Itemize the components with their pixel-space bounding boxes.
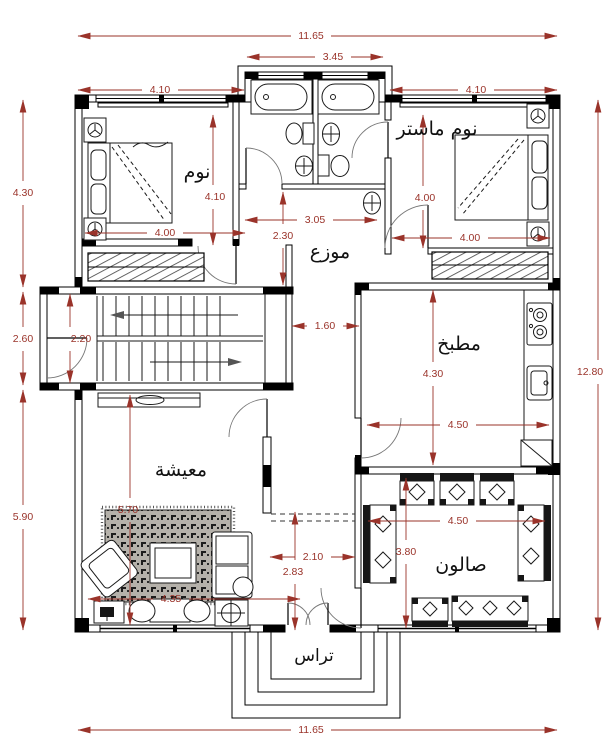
stair-direction-arrows (110, 311, 242, 366)
staircase (97, 294, 265, 383)
corner-sofa (212, 532, 253, 598)
dim-left-lower: 5.90 (13, 390, 34, 630)
dim-label: 4.30 (13, 187, 34, 199)
dim-label: 12.80 (577, 366, 603, 378)
door-bath-left (246, 148, 282, 184)
kitchen-corner-cabinet (521, 440, 552, 466)
salon-sofa-right (518, 505, 551, 581)
bathtub-left (251, 80, 312, 114)
dim-top-bath: 3.45 (247, 51, 383, 63)
nightstand-top-master (527, 104, 549, 128)
nightstand-bottom-left (84, 218, 106, 240)
window-bedroom-top (96, 95, 228, 107)
salon-sofa-bottom-wide (452, 596, 528, 627)
open-beam-dashed (271, 514, 355, 521)
dim-top-right-room: 4.10 (390, 84, 557, 96)
coffee-table (150, 543, 196, 583)
dim-label: 4.50 (448, 419, 469, 431)
dim-label: 1.60 (315, 320, 336, 332)
hall-sideboard (98, 393, 200, 407)
terrace-steps (232, 632, 400, 718)
dim-right-total: 12.80 (577, 100, 603, 630)
table-with-fan-symbol (215, 600, 248, 626)
dim-master-width: 4.00 (392, 232, 550, 244)
label-terrace: تراس (294, 646, 334, 666)
dim-entry-depth: 2.83 (283, 512, 304, 630)
dim-label: 5.70 (118, 504, 139, 516)
salon-chair-2 (440, 473, 474, 505)
kitchen-sink (527, 366, 552, 400)
dim-top-total: 11.65 (78, 30, 557, 42)
dim-corridor: 1.60 (292, 320, 359, 332)
dim-label: 2.60 (13, 333, 34, 345)
dim-top-left-room: 4.10 (78, 84, 244, 96)
door-kitchen (361, 418, 401, 458)
salon-chair-1 (400, 473, 434, 505)
window-bath-right (322, 72, 368, 79)
bathtub-right (318, 80, 379, 114)
door-bath-ensuite (352, 122, 388, 158)
dim-label: 4.10 (466, 84, 487, 96)
sink-left-bath-2 (296, 156, 313, 176)
nightstand-top-left (84, 118, 106, 142)
dim-left-upper: 4.30 (13, 100, 34, 287)
dim-label: 4.10 (205, 191, 226, 203)
bedroom-furniture (84, 118, 204, 281)
dim-label: 4.50 (448, 515, 469, 527)
dim-label: 4.30 (423, 368, 444, 380)
floor-plan-page: 11.65 3.45 4.10 4.10 4.00 3.05 4.00 1.60… (0, 0, 615, 741)
wardrobe-left (88, 253, 204, 281)
kitchen-fixtures (521, 290, 552, 466)
label-salon: صالون (435, 554, 486, 576)
toilet-right (318, 155, 349, 177)
dim-bedroom-width: 4.00 (85, 227, 245, 239)
bed-left (88, 142, 172, 223)
dim-left-stair: 2.60 (13, 292, 34, 385)
dim-label: 2.10 (303, 551, 324, 563)
dim-label: 3.80 (396, 546, 417, 558)
dim-label: 3.05 (305, 214, 326, 226)
dim-label: 4.00 (460, 232, 481, 244)
salon-sofa-bottom-small (412, 598, 448, 627)
dim-hall-width: 3.05 (245, 214, 377, 226)
label-bedroom: نوم (184, 161, 211, 183)
door-salon (321, 588, 361, 628)
dim-label: 2.30 (273, 230, 294, 242)
dim-label: 4.10 (150, 84, 171, 96)
sink-hall (364, 192, 381, 214)
salon-sofa-left (363, 505, 396, 583)
dim-stair-width: 2.20 (70, 294, 91, 383)
dim-label: 11.65 (298, 724, 324, 736)
dim-label: 2.20 (71, 333, 92, 345)
dim-label: 3.45 (323, 51, 344, 63)
window-master-top (400, 95, 546, 107)
dim-label: 11.65 (298, 30, 324, 42)
dim-bottom-total: 11.65 (78, 724, 557, 736)
sink-left-bath (323, 123, 340, 145)
bed-master (455, 135, 548, 220)
dim-kitchen-depth: 4.30 (423, 290, 444, 465)
dim-kitchen-width: 4.50 (367, 419, 549, 431)
dim-label: 4.35 (161, 593, 182, 605)
door-terrace-double (288, 603, 328, 625)
toilet-left (286, 123, 314, 144)
window-bath-left (258, 72, 304, 79)
salon-furniture (363, 473, 551, 627)
dim-label: 4.00 (155, 227, 176, 239)
wardrobe-master (432, 252, 548, 279)
floor-plan-canvas: 11.65 3.45 4.10 4.10 4.00 3.05 4.00 1.60… (0, 0, 615, 741)
dim-label: 2.83 (283, 566, 304, 578)
label-living: معيشة (155, 459, 207, 481)
door-living (229, 399, 267, 437)
dim-label: 5.90 (13, 511, 34, 523)
dim-entry-width: 2.10 (270, 551, 355, 563)
label-master-bedroom: نوم ماستر (395, 118, 477, 140)
label-hall: موزع (310, 241, 351, 263)
nightstand-bottom-master (527, 222, 549, 246)
label-kitchen: مطبخ (437, 333, 481, 355)
tv-cabinet (94, 601, 124, 623)
stove (527, 303, 552, 345)
dim-label: 4.00 (415, 192, 436, 204)
salon-chair-3 (480, 473, 514, 505)
